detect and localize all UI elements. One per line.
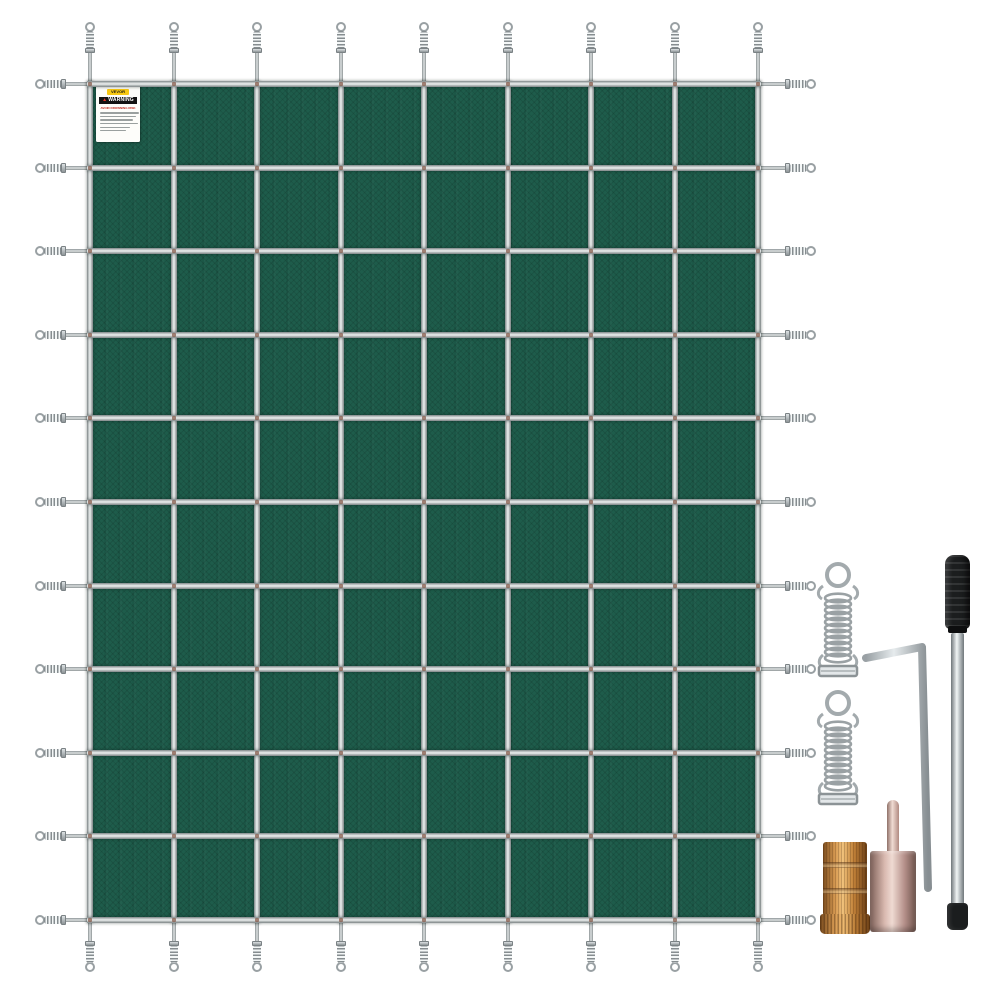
stitch-dot: [88, 333, 92, 337]
stitch-dot: [673, 918, 677, 922]
stitch-dot: [506, 166, 510, 170]
spring-coil: [671, 31, 679, 49]
spring-clip: [61, 163, 66, 173]
stitch-dot: [506, 834, 510, 838]
spring-clip: [785, 831, 790, 841]
stitch-dot: [506, 500, 510, 504]
stitch-dot: [255, 834, 259, 838]
stitch-dot: [589, 249, 593, 253]
stitch-dot: [673, 82, 677, 86]
spring-clip: [61, 664, 66, 674]
stitch-dot: [255, 918, 259, 922]
spring-loop: [503, 962, 513, 972]
stitch-dot: [673, 834, 677, 838]
stitch-dot: [339, 834, 343, 838]
stitch-dot: [88, 500, 92, 504]
brand-badge: VEVOR: [107, 89, 129, 95]
spring-clip: [169, 941, 179, 946]
spring-coil: [337, 945, 345, 963]
stitch-dot: [88, 249, 92, 253]
spring-loop: [252, 962, 262, 972]
stitch-dot: [506, 918, 510, 922]
stitch-dot: [589, 834, 593, 838]
spring-coil: [44, 331, 62, 339]
stitch-dot: [88, 918, 92, 922]
spring-clip: [252, 48, 262, 53]
spring-clip: [785, 748, 790, 758]
fine-print-line: [100, 127, 130, 128]
spring-clip: [503, 941, 513, 946]
stitch-dot: [255, 333, 259, 337]
spring-clip: [61, 581, 66, 591]
spring-loop: [85, 962, 95, 972]
spring-coil: [44, 414, 62, 422]
stitch-dot: [756, 834, 760, 838]
spring-loop: [586, 962, 596, 972]
stitch-dot: [756, 751, 760, 755]
spring-coil: [170, 31, 178, 49]
stitch-dot: [422, 82, 426, 86]
spring-clip: [670, 48, 680, 53]
spring-coil: [253, 945, 261, 963]
anchor-groove: [823, 888, 867, 894]
spring-clip: [586, 941, 596, 946]
stitch-dot: [589, 667, 593, 671]
stitch-dot: [255, 82, 259, 86]
spring-clip: [785, 581, 790, 591]
stitch-dot: [506, 416, 510, 420]
stitch-dot: [88, 834, 92, 838]
spring-loop: [806, 246, 816, 256]
stitch-dot: [506, 249, 510, 253]
stitch-dot: [506, 751, 510, 755]
stitch-dot: [255, 416, 259, 420]
stitch-dot: [339, 667, 343, 671]
spring-clip: [336, 941, 346, 946]
stitch-dot: [339, 584, 343, 588]
rod-handle: [945, 555, 970, 629]
stitch-dot: [172, 667, 176, 671]
stitch-dot: [506, 667, 510, 671]
stitch-dot: [88, 82, 92, 86]
spring-coil: [789, 247, 807, 255]
rod-shaft: [951, 633, 964, 905]
spring-clip: [785, 246, 790, 256]
stitch-dot: [339, 166, 343, 170]
spring-clip: [753, 941, 763, 946]
spring-coil: [789, 414, 807, 422]
stitch-dot: [339, 249, 343, 253]
spring-loop: [336, 962, 346, 972]
spring-coil: [44, 916, 62, 924]
stitch-dot: [589, 584, 593, 588]
stitch-dot: [422, 500, 426, 504]
stitch-dot: [172, 249, 176, 253]
stitch-dot: [422, 667, 426, 671]
stitch-dot: [422, 416, 426, 420]
spring-loop: [419, 962, 429, 972]
spring-loop: [753, 962, 763, 972]
spring-clip: [61, 330, 66, 340]
spring-coil: [44, 80, 62, 88]
stitch-dot: [172, 834, 176, 838]
stitch-dot: [673, 166, 677, 170]
stitch-dot: [255, 500, 259, 504]
installation-rod: [941, 552, 975, 934]
product-photo: VEVOR ▲WARNING AVOID DROWNING RISK: [0, 0, 1000, 1000]
stitch-dot: [589, 500, 593, 504]
spring-coil: [44, 164, 62, 172]
spring-coil: [44, 832, 62, 840]
stitch-dot: [506, 584, 510, 588]
rod-tip: [947, 903, 968, 930]
spring-clip: [670, 941, 680, 946]
stitch-dot: [88, 166, 92, 170]
stitch-dot: [172, 416, 176, 420]
stitch-dot: [756, 918, 760, 922]
stitch-dot: [339, 500, 343, 504]
spring-clip: [785, 664, 790, 674]
spring-loop: [806, 413, 816, 423]
stitch-dot: [172, 333, 176, 337]
stitch-dot: [422, 918, 426, 922]
spring-coil: [420, 31, 428, 49]
spring-coil: [671, 945, 679, 963]
stitch-dot: [88, 584, 92, 588]
stitch-dot: [422, 834, 426, 838]
spring-clip: [169, 48, 179, 53]
stitch-dot: [172, 584, 176, 588]
spring-clip: [61, 246, 66, 256]
stitch-dot: [172, 500, 176, 504]
spring-coil: [44, 247, 62, 255]
spring-clip: [336, 48, 346, 53]
spring-loop: [670, 962, 680, 972]
stitch-dot: [422, 166, 426, 170]
spring-coil: [789, 665, 807, 673]
stitch-dot: [673, 249, 677, 253]
spring-loop: [806, 497, 816, 507]
spring-clip: [785, 79, 790, 89]
stitch-dot: [339, 751, 343, 755]
stitch-dot: [339, 416, 343, 420]
fine-print-line: [100, 119, 133, 120]
warning-label: VEVOR ▲WARNING AVOID DROWNING RISK: [96, 86, 140, 142]
spring-clip: [753, 48, 763, 53]
spring-coil: [789, 916, 807, 924]
spring-coil: [789, 582, 807, 590]
spring-coil: [44, 749, 62, 757]
tool-stem: [887, 800, 899, 853]
spring-loop: [806, 163, 816, 173]
spring-clip: [61, 915, 66, 925]
stitch-dot: [673, 584, 677, 588]
spring-clip: [785, 915, 790, 925]
spring-loop: [806, 831, 816, 841]
spring-clip: [61, 413, 66, 423]
fine-print-line: [100, 123, 138, 124]
spring-coil: [587, 945, 595, 963]
spring-clip: [85, 941, 95, 946]
spring-coil: [504, 945, 512, 963]
stitch-dot: [506, 82, 510, 86]
stitch-dot: [506, 333, 510, 337]
stitch-dot: [589, 751, 593, 755]
stitch-dot: [589, 333, 593, 337]
stitch-dot: [756, 82, 760, 86]
spring-coil: [789, 164, 807, 172]
fine-print-line: [100, 116, 136, 117]
stitch-dot: [756, 500, 760, 504]
spring-clip: [785, 413, 790, 423]
spring-clip: [419, 48, 429, 53]
spring-clip: [503, 48, 513, 53]
stitch-dot: [255, 249, 259, 253]
spring-coil: [170, 945, 178, 963]
spring-coil: [754, 945, 762, 963]
stitch-dot: [756, 667, 760, 671]
spring-coil: [587, 31, 595, 49]
spring-coil: [789, 498, 807, 506]
anchor-groove: [823, 862, 867, 868]
spring-loop: [806, 748, 816, 758]
fine-print-line: [100, 112, 139, 113]
spring-clip: [61, 497, 66, 507]
spring-coil: [44, 665, 62, 673]
spring-clip: [61, 748, 66, 758]
spring-coil: [337, 31, 345, 49]
fine-print-line: [100, 130, 126, 131]
stitch-dot: [673, 667, 677, 671]
stitch-dot: [756, 166, 760, 170]
stitch-dot: [673, 416, 677, 420]
spring-coil: [86, 945, 94, 963]
spring-coil: [44, 498, 62, 506]
stitch-dot: [589, 918, 593, 922]
stitch-dot: [589, 82, 593, 86]
spring-clip: [419, 941, 429, 946]
spring-clip: [785, 163, 790, 173]
spring-clip: [785, 497, 790, 507]
stitch-dot: [88, 416, 92, 420]
spring-coil: [789, 749, 807, 757]
stitch-dot: [88, 751, 92, 755]
stitch-dot: [172, 751, 176, 755]
spring-clip: [586, 48, 596, 53]
stitch-dot: [255, 751, 259, 755]
stitch-dot: [422, 584, 426, 588]
spring-clip: [61, 79, 66, 89]
stitch-dot: [589, 416, 593, 420]
stitch-dot: [255, 584, 259, 588]
spring-clip: [785, 330, 790, 340]
spring-coil: [420, 945, 428, 963]
stitch-dot: [673, 333, 677, 337]
spring-coil: [504, 31, 512, 49]
stitch-dot: [422, 751, 426, 755]
stitch-dot: [589, 166, 593, 170]
stitch-dot: [88, 667, 92, 671]
spring-loop: [169, 962, 179, 972]
warning-banner: ▲WARNING: [99, 97, 137, 104]
stitch-dot: [756, 584, 760, 588]
spring-clip: [61, 831, 66, 841]
spring-clip: [85, 48, 95, 53]
stitch-dot: [422, 333, 426, 337]
stitch-dot: [673, 500, 677, 504]
spring-loop: [806, 915, 816, 925]
stitch-dot: [172, 166, 176, 170]
stitch-dot: [339, 333, 343, 337]
stitch-dot: [172, 918, 176, 922]
stitch-dot: [339, 918, 343, 922]
spring-coil: [86, 31, 94, 49]
stitch-dot: [339, 82, 343, 86]
tool-body: [870, 851, 916, 932]
anchor-stem-tool: [868, 800, 918, 932]
stitch-dot: [673, 751, 677, 755]
stitch-dot: [255, 166, 259, 170]
anchor-knurled-base: [820, 914, 870, 934]
stitch-dot: [756, 333, 760, 337]
rod-collar: [948, 626, 967, 633]
stitch-dot: [756, 416, 760, 420]
anchor-body: [823, 842, 867, 916]
drowning-notice-text: AVOID DROWNING RISK: [96, 106, 140, 110]
spring-loop: [806, 581, 816, 591]
stitch-dot: [172, 82, 176, 86]
warning-triangle-icon: ▲: [102, 97, 107, 103]
warning-title: WARNING: [108, 97, 134, 103]
stitch-dot: [255, 667, 259, 671]
spring-coil: [253, 31, 261, 49]
spring-coil: [789, 80, 807, 88]
spring-loop: [806, 79, 816, 89]
stitch-dot: [422, 249, 426, 253]
brass-anchor: [820, 842, 870, 934]
spring-coil: [754, 31, 762, 49]
spring-clip: [252, 941, 262, 946]
stitch-dot: [756, 249, 760, 253]
spring-loop: [806, 330, 816, 340]
spring-coil: [789, 331, 807, 339]
spring-coil: [789, 832, 807, 840]
spring-coil: [44, 582, 62, 590]
label-fine-print: [96, 112, 140, 131]
